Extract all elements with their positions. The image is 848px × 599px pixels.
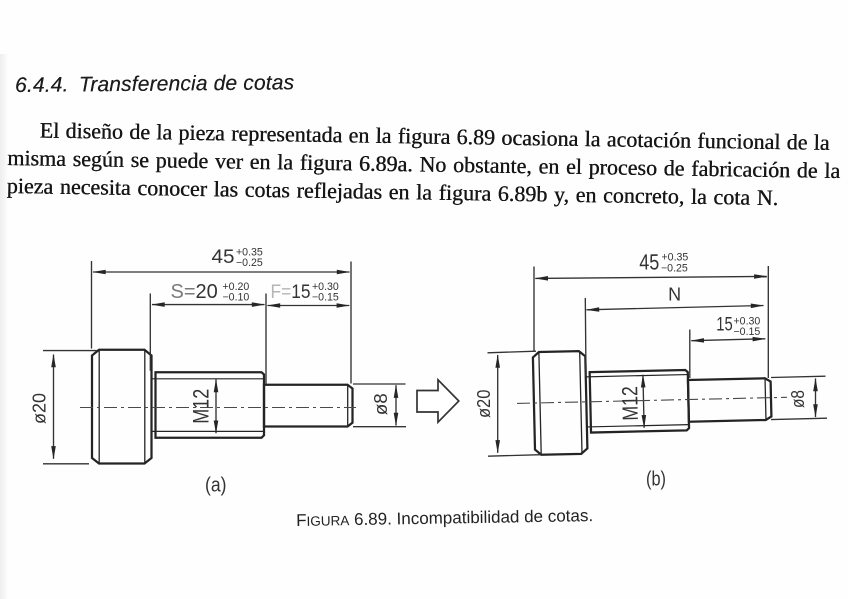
svg-text:15: 15 (716, 314, 733, 335)
svg-text:M12: M12 (617, 386, 643, 421)
svg-text:(a): (a) (205, 474, 227, 497)
svg-text:45: 45 (212, 246, 235, 268)
svg-text:ø20: ø20 (28, 393, 49, 424)
svg-text:N: N (668, 285, 681, 305)
svg-text:ø8: ø8 (370, 393, 391, 415)
svg-text:−0.25: −0.25 (661, 262, 688, 274)
svg-text:M12: M12 (189, 389, 214, 424)
svg-text:ø8: ø8 (787, 390, 808, 408)
svg-text:−0.25: −0.25 (236, 257, 263, 269)
svg-text:45: 45 (639, 249, 659, 274)
svg-text:−0.15: −0.15 (312, 292, 339, 304)
svg-text:−0.15: −0.15 (734, 326, 761, 338)
svg-text:(b): (b) (646, 468, 666, 491)
svg-text:F=15: F=15 (271, 281, 311, 303)
svg-text:S=20: S=20 (171, 281, 218, 303)
svg-text:ø20: ø20 (473, 390, 494, 419)
svg-text:−0.10: −0.10 (223, 292, 250, 304)
